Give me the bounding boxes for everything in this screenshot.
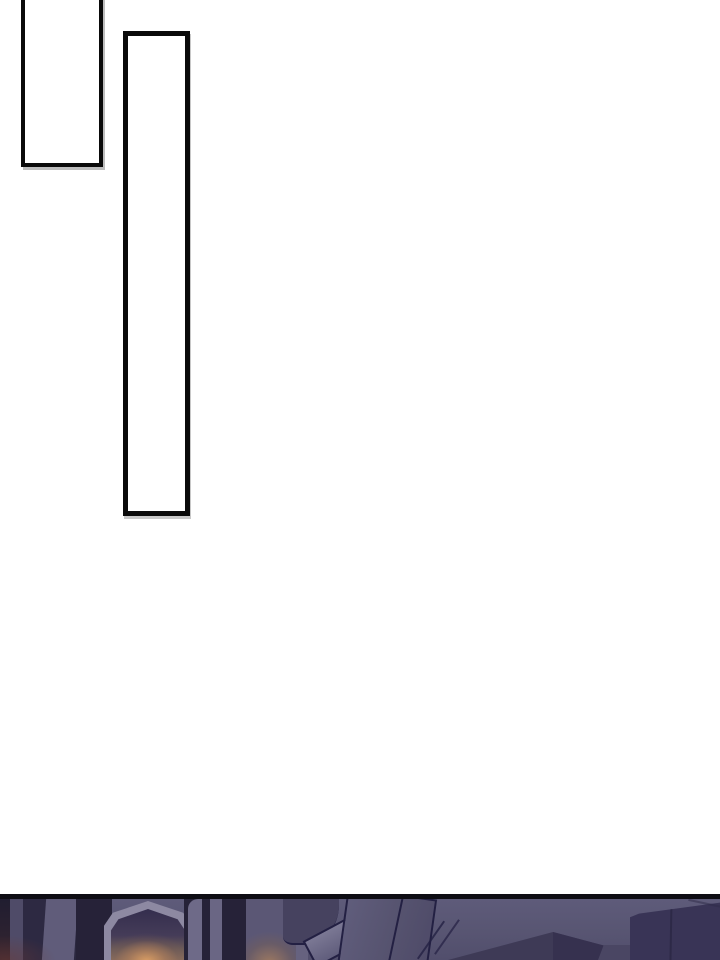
speech-bubble bbox=[21, 0, 103, 167]
pillar bbox=[210, 899, 222, 960]
lamp-glow bbox=[111, 909, 185, 960]
pillar bbox=[188, 899, 202, 960]
speech-bubble-text bbox=[128, 36, 185, 511]
bottom-artwork-panel bbox=[0, 894, 720, 960]
comic-page bbox=[0, 0, 720, 960]
speech-bubble bbox=[123, 31, 190, 516]
board-seam-line bbox=[385, 894, 404, 960]
warm-ambient-tint bbox=[0, 926, 70, 960]
doorway-interior bbox=[111, 909, 185, 960]
window-pillars bbox=[0, 899, 112, 960]
speech-bubble-text bbox=[25, 0, 99, 163]
